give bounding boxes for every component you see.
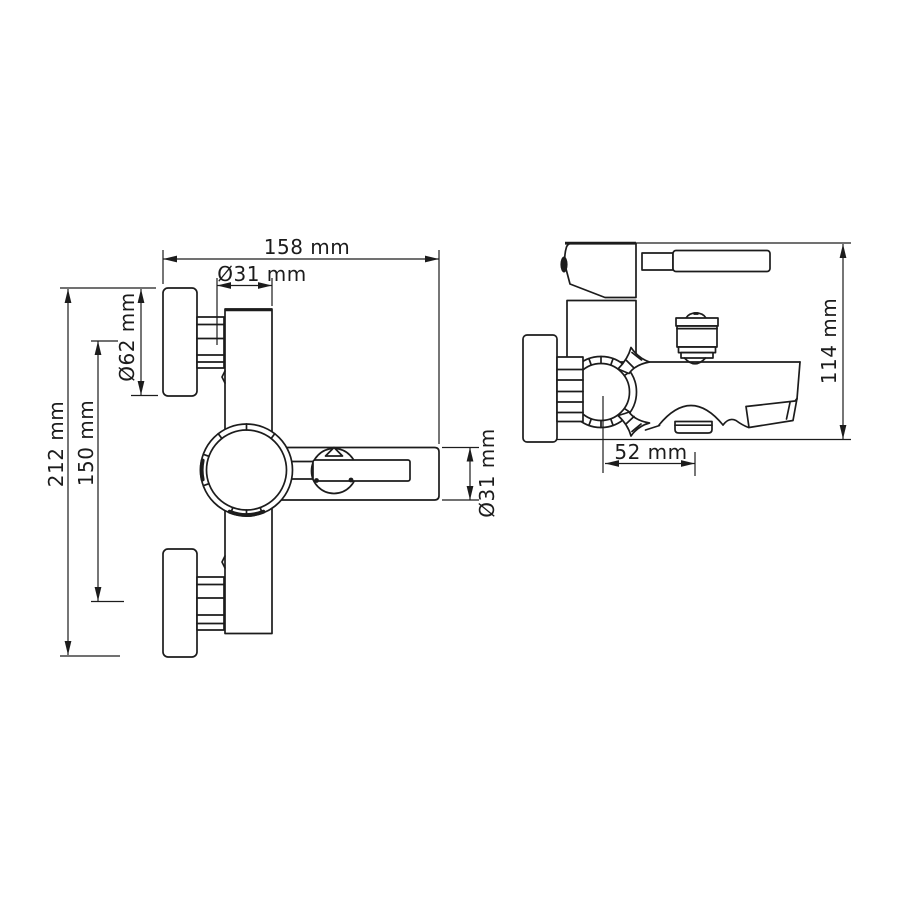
connection-centers-label: 150 mm bbox=[74, 400, 98, 487]
body-diameter-label: Ø31 mm bbox=[217, 262, 307, 286]
side-flange bbox=[523, 335, 557, 442]
aerator bbox=[675, 422, 712, 434]
set-screw bbox=[560, 257, 567, 273]
handle-diameter-label: Ø31 mm bbox=[475, 428, 499, 518]
diverter-knob bbox=[676, 313, 718, 364]
arrowhead bbox=[467, 486, 474, 500]
arrowhead bbox=[163, 256, 177, 263]
dim-overall-height: 212 mm bbox=[44, 288, 156, 656]
flange-diameter-label: Ø62 mm bbox=[115, 292, 139, 382]
spout-body bbox=[636, 362, 800, 433]
lever-stem bbox=[642, 253, 673, 270]
cartridge-housing bbox=[560, 243, 636, 362]
boss-pin-left bbox=[314, 478, 319, 483]
dim-handle-diameter: Ø31 mm bbox=[442, 428, 499, 518]
front-view: 158 mm Ø31 mm 212 mm 150 mm bbox=[44, 235, 499, 657]
arrowhead bbox=[840, 425, 847, 439]
faucet-dimension-drawing: 158 mm Ø31 mm 212 mm 150 mm bbox=[0, 0, 900, 900]
technical-drawing: 158 mm Ø31 mm 212 mm 150 mm bbox=[0, 0, 900, 900]
handle-grip bbox=[313, 460, 410, 483]
cartridge-cap bbox=[565, 244, 636, 298]
wall-nut-top bbox=[197, 317, 224, 368]
arrowhead bbox=[467, 448, 474, 462]
arrowhead bbox=[65, 289, 72, 303]
dim-flange-diameter: Ø62 mm bbox=[115, 289, 158, 396]
lever-handle bbox=[642, 251, 770, 272]
arrowhead bbox=[95, 587, 102, 601]
wall-nut-bottom bbox=[197, 577, 224, 630]
overall-depth-label: 114 mm bbox=[817, 298, 841, 385]
arrowhead bbox=[65, 641, 72, 655]
flange-top-plate bbox=[163, 288, 197, 396]
arrowhead bbox=[425, 256, 439, 263]
overall-height-label: 212 mm bbox=[44, 401, 68, 488]
wall-flange-top bbox=[163, 288, 197, 396]
overall-width-label: 158 mm bbox=[264, 235, 351, 259]
spout-offset-label: 52 mm bbox=[614, 440, 687, 464]
flange-bottom-plate bbox=[163, 549, 197, 657]
housing-block bbox=[567, 301, 636, 363]
side-nut bbox=[557, 357, 583, 422]
wall-flange-bottom bbox=[163, 549, 197, 657]
arrowhead bbox=[840, 244, 847, 258]
arrowhead bbox=[95, 341, 102, 355]
boss-pin-right bbox=[349, 478, 354, 483]
side-view: 114 mm 52 mm bbox=[523, 243, 851, 476]
lever-grip bbox=[673, 251, 770, 272]
valve-ring bbox=[201, 424, 293, 516]
arrowhead bbox=[138, 381, 145, 395]
dim-overall-depth: 114 mm bbox=[635, 243, 851, 439]
ring-inner bbox=[207, 430, 287, 510]
